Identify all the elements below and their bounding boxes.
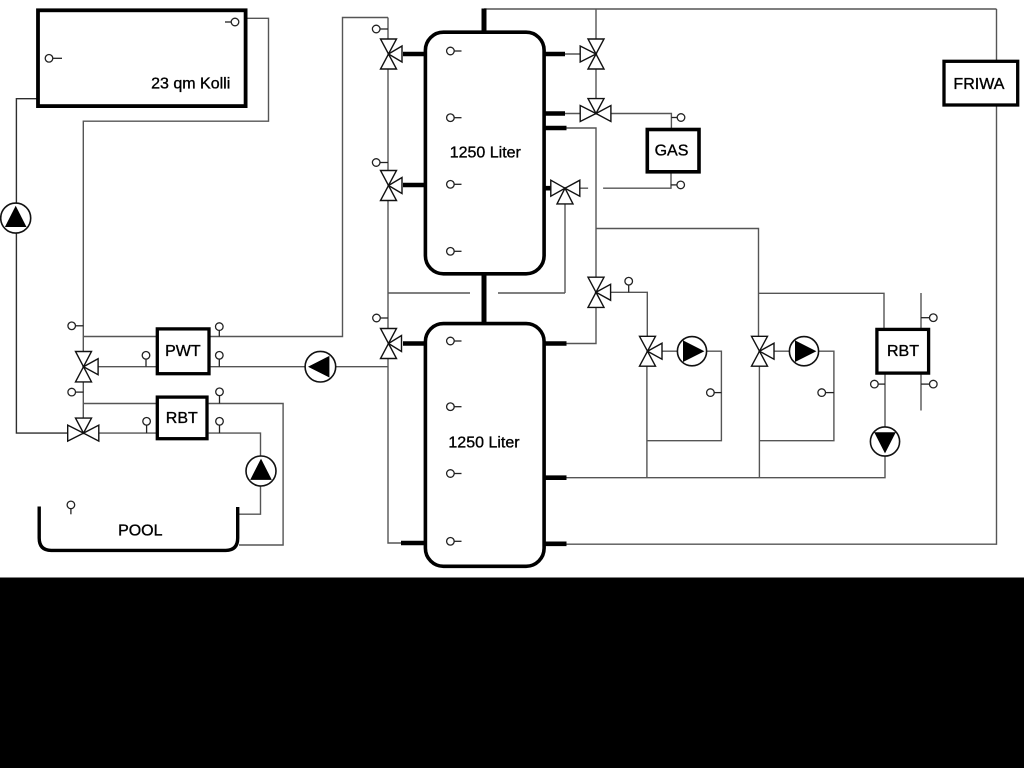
svg-text:1250 Liter: 1250 Liter <box>448 434 520 451</box>
svg-text:POOL: POOL <box>118 522 163 539</box>
svg-text:1250 Liter: 1250 Liter <box>450 145 522 162</box>
svg-text:GAS: GAS <box>655 142 689 159</box>
svg-text:23 qm Kolli: 23 qm Kolli <box>151 76 230 93</box>
svg-text:RBT: RBT <box>887 343 919 360</box>
svg-text:RBT: RBT <box>166 410 198 427</box>
svg-text:FRIWA: FRIWA <box>953 76 1004 93</box>
svg-text:PWT: PWT <box>165 343 201 360</box>
